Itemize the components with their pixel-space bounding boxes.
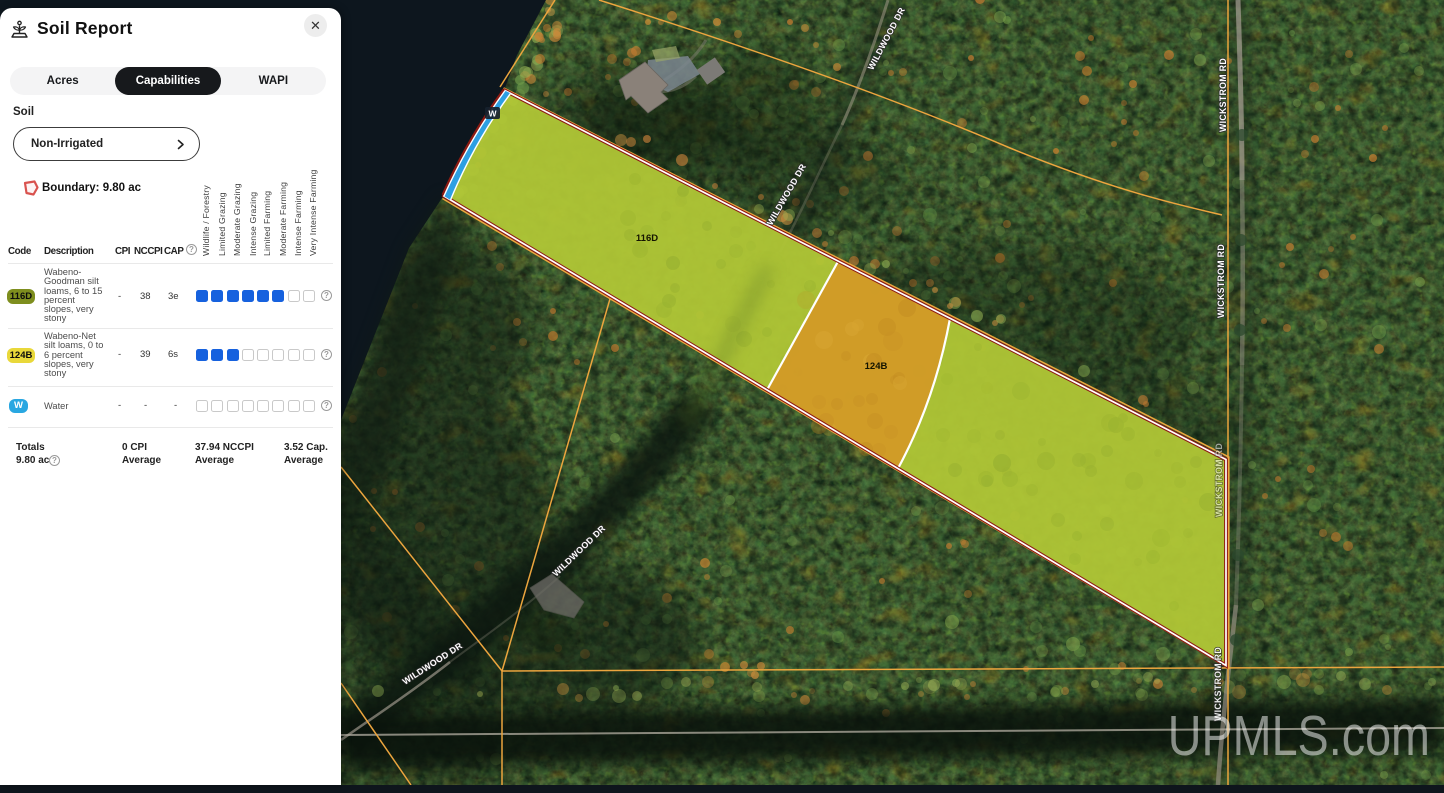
svg-text:WICKSTROM RD: WICKSTROM RD: [1216, 244, 1226, 318]
svg-text:124B: 124B: [865, 361, 888, 372]
svg-text:W: W: [488, 109, 497, 119]
svg-text:WICKSTROM RD: WICKSTROM RD: [1218, 58, 1228, 132]
svg-text:WICKSTROM RD: WICKSTROM RD: [1214, 443, 1224, 517]
svg-text:116D: 116D: [636, 233, 658, 244]
svg-text:UPMLS.com: UPMLS.com: [1168, 705, 1430, 768]
